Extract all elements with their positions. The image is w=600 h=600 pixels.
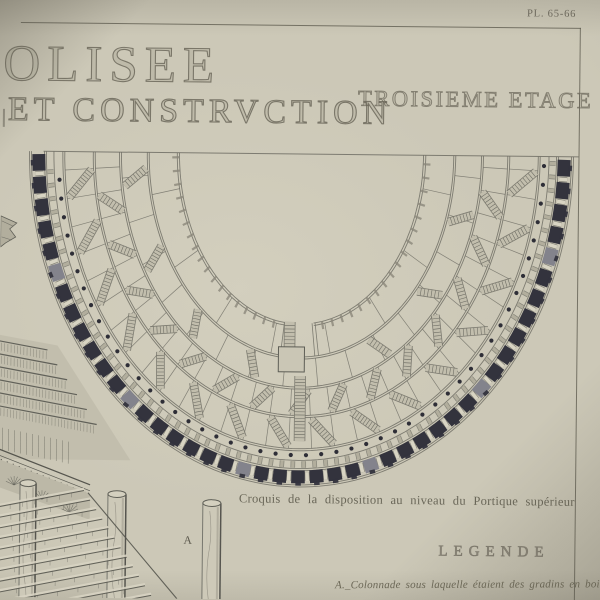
molding-fragment-detail [1,216,17,247]
third-floor-plan-drawing [0,0,600,600]
legend-item-a: A._Colonnade sous laquelle étaient des g… [335,578,600,591]
column-label-a: A [183,535,191,547]
legend-title: LEGENDE [438,543,549,561]
photographed-plate: COLISEE ET CONSTRVCTION TROISIEME ETAGE … [0,0,600,600]
plate: COLISEE ET CONSTRVCTION TROISIEME ETAGE … [0,0,600,600]
